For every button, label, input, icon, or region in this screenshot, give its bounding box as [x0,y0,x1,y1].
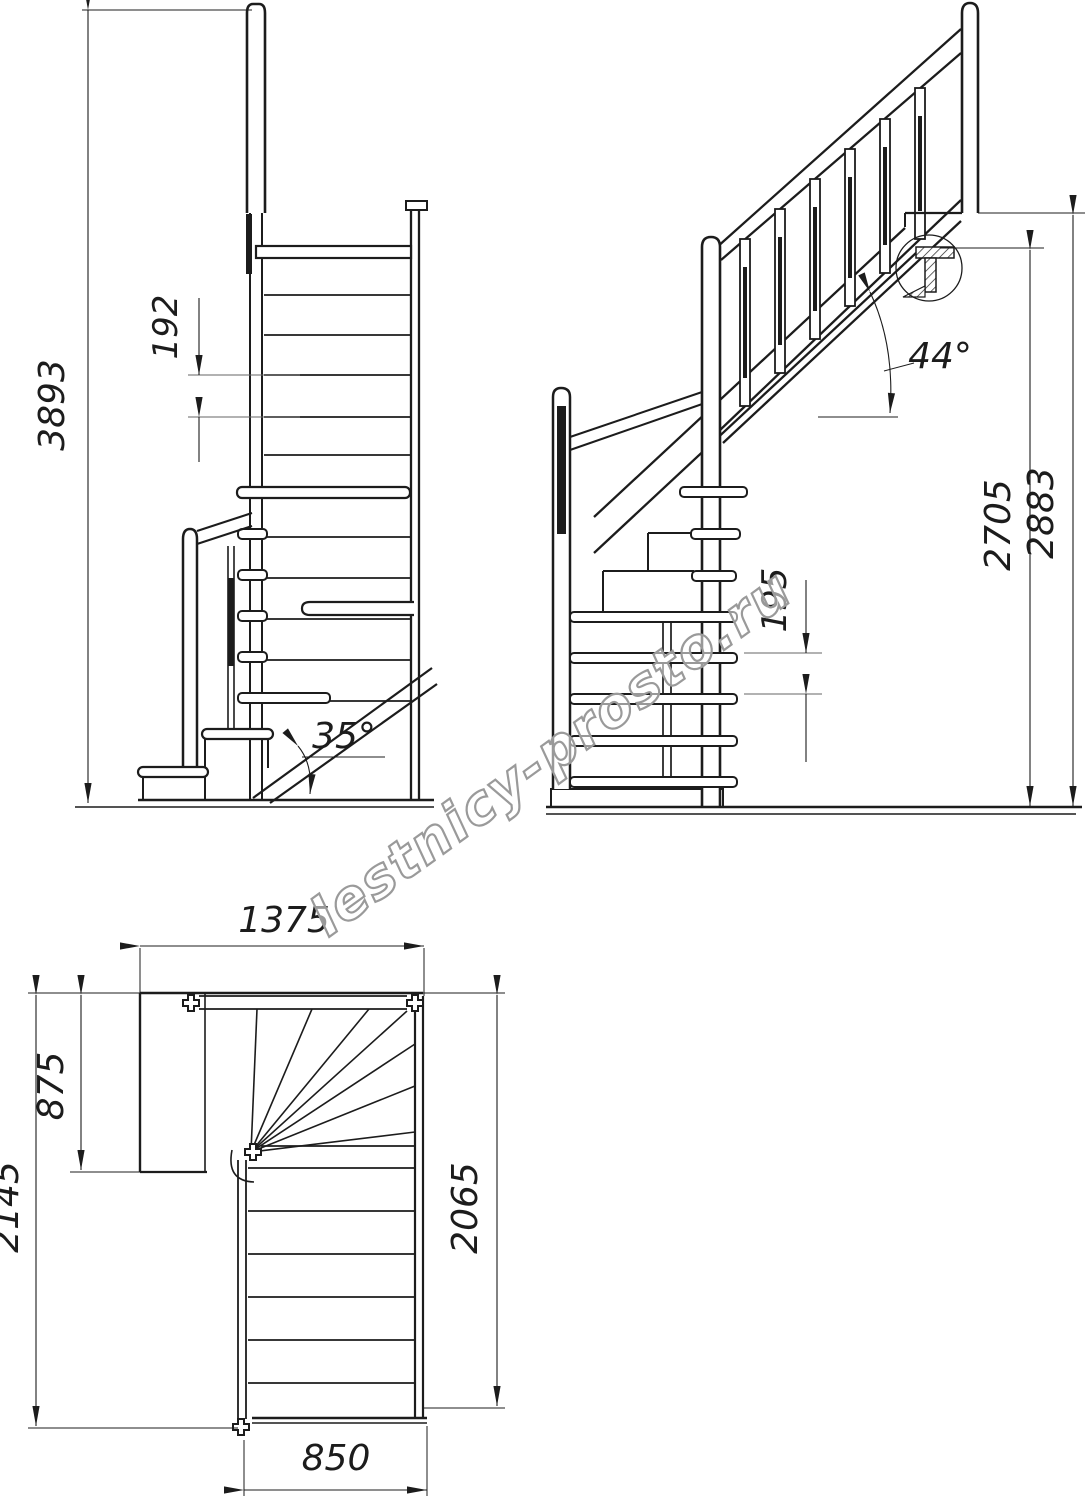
side-step-profile [603,533,694,612]
side-top-post [962,3,978,213]
plan-newel-posts [183,995,423,1435]
plan-landing-depth-label: 875 [31,1052,72,1121]
plan-dim-right: 2065 [423,993,505,1408]
front-baluster-insert [228,578,235,666]
front-angle-label: 35° [312,716,376,757]
plan-post-bottom [233,1419,249,1435]
side-balusters [740,88,925,406]
plan-post-top-left [183,995,199,1011]
front-structure [75,4,437,807]
plan-structure [140,993,427,1435]
front-landing-edge [256,246,411,258]
technical-drawing: 3893 192 35° [0,0,1085,1500]
drawing-sheet: 3893 192 35° [0,0,1085,1500]
front-dim-rise: 192 [146,295,300,462]
front-view: 3893 192 35° [32,4,437,807]
side-height-2705-label: 2705 [978,479,1019,571]
front-bottom-steps [138,729,273,800]
front-total-height-label: 3893 [32,359,73,451]
side-height-2883-label: 2883 [1021,467,1062,559]
front-mid-rail [237,487,410,498]
front-rise-label: 192 [146,295,186,360]
front-guard-rail [302,602,414,615]
plan-view: 1375 875 2145 2065 850 [0,900,505,1496]
plan-flight-length-label: 2065 [445,1162,486,1254]
plan-total-length-label: 2145 [0,1161,27,1253]
plan-winder-fan [251,1009,415,1152]
side-section-detail [896,235,962,301]
plan-dim-left: 875 2145 [0,993,238,1428]
plan-post-top-right [407,995,423,1011]
plan-dim-bottom: 850 [244,1426,427,1496]
side-central-post [702,237,720,807]
side-newel-insert [557,406,566,534]
front-lower-newel [183,529,197,768]
front-dim-total-height: 3893 [32,10,252,803]
plan-flight-width-label: 850 [302,1438,371,1479]
side-angle-label: 44° [908,336,972,377]
side-dim-heights: 2705 2883 [940,213,1085,806]
side-angle-annotation: 44° [818,292,972,417]
plan-steps [248,1168,415,1383]
front-newel-post [247,4,265,213]
